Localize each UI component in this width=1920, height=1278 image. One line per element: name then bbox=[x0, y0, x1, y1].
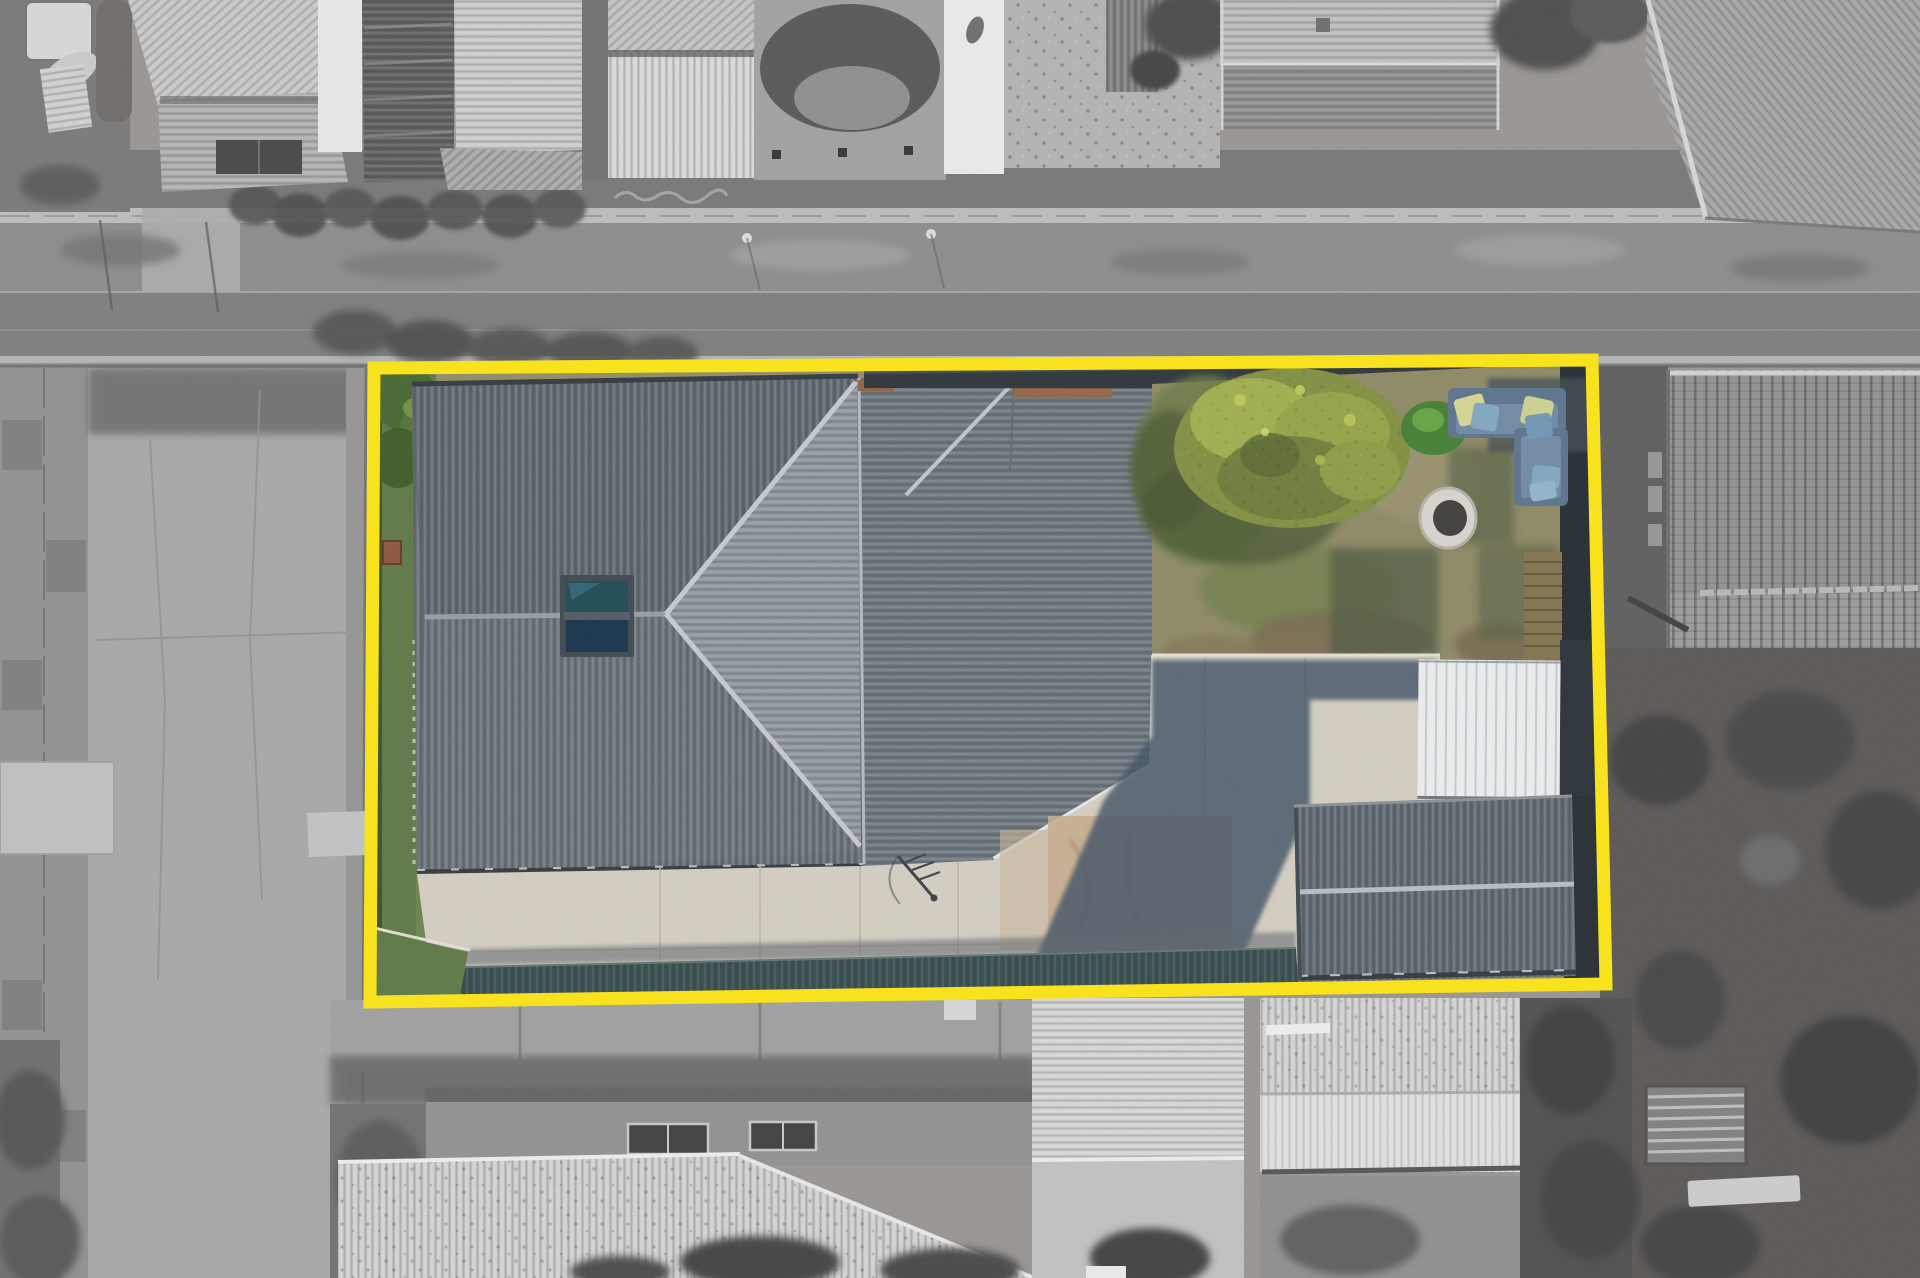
aerial-photo bbox=[0, 0, 1920, 1278]
film-grain-overlay bbox=[0, 0, 1920, 1278]
aerial-photo-canvas bbox=[0, 0, 1920, 1278]
